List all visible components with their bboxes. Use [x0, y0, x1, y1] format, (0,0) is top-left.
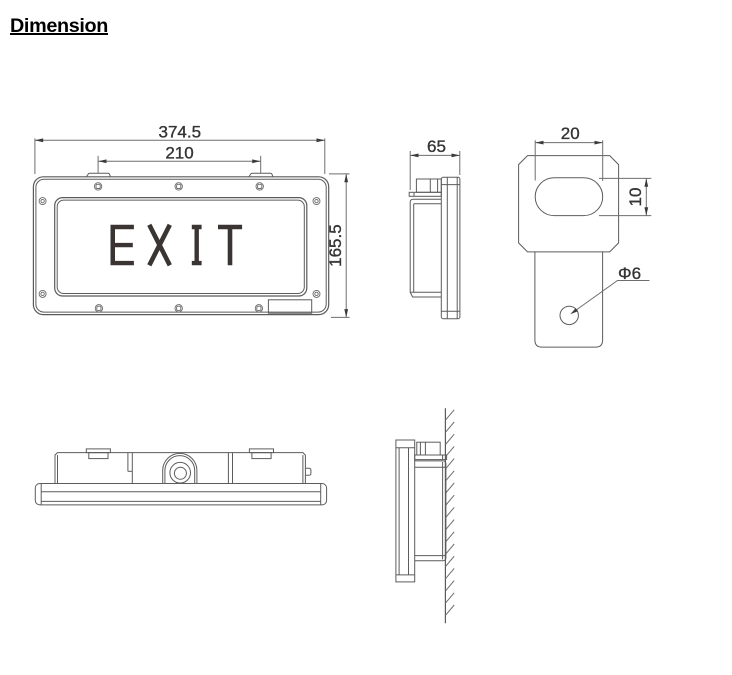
svg-text:165.5: 165.5: [326, 224, 345, 267]
svg-text:374.5: 374.5: [159, 122, 202, 141]
svg-text:Φ6: Φ6: [618, 264, 641, 283]
svg-text:10: 10: [626, 188, 645, 207]
svg-text:65: 65: [427, 137, 446, 156]
svg-text:210: 210: [165, 143, 193, 162]
svg-text:20: 20: [561, 124, 580, 143]
